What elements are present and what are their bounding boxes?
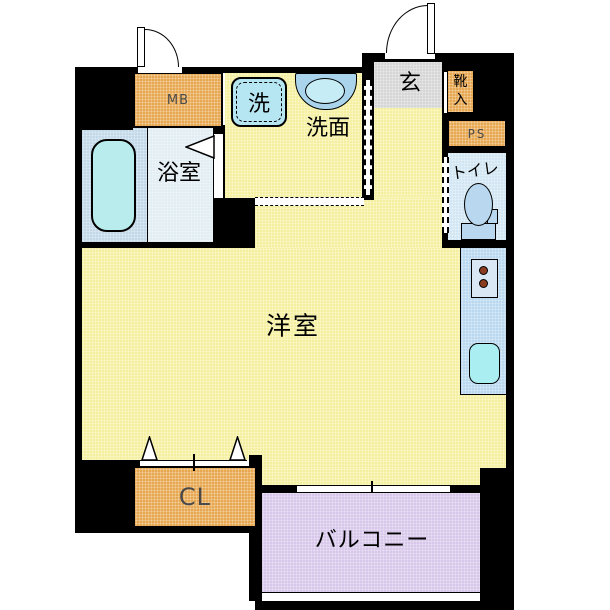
wall-segment [480, 468, 514, 610]
wall-segment [262, 485, 297, 493]
shoe-box-side-gap [443, 72, 448, 113]
entrance-label: 玄 [399, 73, 421, 95]
entrance-door-swing-arc [386, 5, 428, 53]
entrance-door-leaf [427, 3, 435, 54]
washroom-label: 洗面 [306, 118, 350, 140]
toilet-bowl [464, 183, 493, 226]
wall-segment [506, 120, 514, 468]
shoe-box-label: 靴入 [453, 74, 468, 109]
closet-door-tick [193, 454, 195, 471]
main-room-floor [82, 248, 506, 460]
wall-segment [133, 528, 257, 533]
kitchen-sink [469, 343, 500, 384]
pipe-space: PS [448, 120, 506, 147]
bathroom-door-opening [214, 134, 223, 198]
washing-machine-label: 洗 [248, 86, 270, 118]
floor-plan: MB 靴入 PS CL 洗 浴室 洗面 玄 [0, 0, 610, 610]
closet-door-triangle [229, 436, 246, 461]
wall-segment [213, 198, 255, 248]
wall-segment [75, 242, 218, 248]
wall-segment [450, 485, 480, 493]
meter-box: MB [133, 72, 223, 128]
closet-door-triangle [141, 436, 158, 461]
wall-segment [75, 67, 133, 130]
bathroom-label: 浴室 [157, 163, 201, 185]
bathroom-door-triangle [185, 135, 215, 159]
washbasin-bowl [305, 78, 345, 104]
bathtub [91, 139, 136, 232]
toilet-folding-door [442, 157, 449, 233]
closet-label: CL [179, 483, 211, 511]
wall-segment [255, 601, 514, 610]
washing-machine-pad: 洗 [231, 77, 287, 127]
washroom-sliding-opening [255, 197, 364, 206]
balcony-window-tick [371, 481, 373, 492]
washroom-folding-door [364, 80, 372, 195]
stove-burner [479, 279, 488, 288]
balcony-window [297, 485, 450, 493]
closet: CL [133, 466, 257, 528]
main-room-floor-lower-a [262, 460, 506, 468]
mb-door-swing-arc [145, 29, 179, 67]
meter-box-label: MB [167, 93, 189, 108]
shoe-box: 靴入 [447, 70, 474, 113]
main-room-label: 洋室 [266, 314, 320, 339]
balcony-railing [262, 592, 480, 601]
mb-door-opening [138, 66, 182, 73]
stove-burner [479, 266, 488, 275]
hallway-floor [373, 106, 442, 205]
mb-door-leaf [137, 27, 145, 67]
wall-segment [75, 460, 133, 533]
balcony-label: バルコニー [315, 530, 430, 552]
pipe-space-label: PS [468, 127, 487, 141]
